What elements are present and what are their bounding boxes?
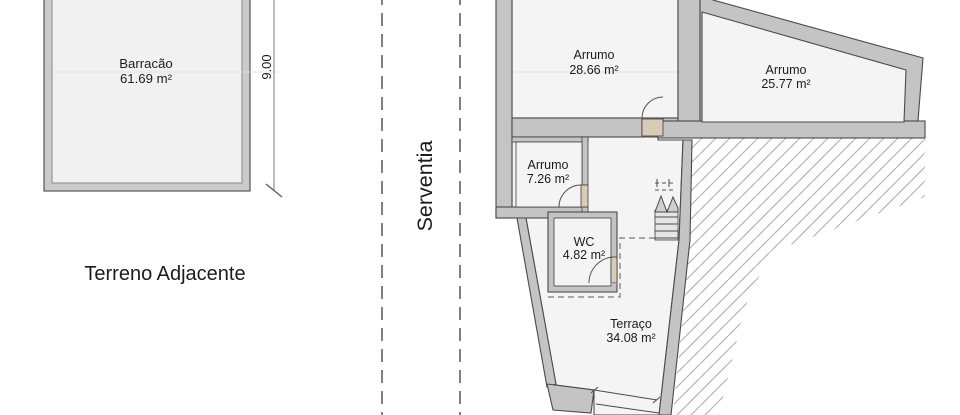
stair-treads-block <box>655 210 678 240</box>
room-terraco-area: 34.08 m² <box>606 331 655 345</box>
room-arrumo-3-name: Arrumo <box>528 158 569 172</box>
serventia-label: Serventia <box>413 141 437 232</box>
room-wc-area: 4.82 m² <box>563 248 605 262</box>
room-arrumo-2-name: Arrumo <box>766 63 807 77</box>
room-arrumo-1-name: Arrumo <box>574 48 615 62</box>
wall-room3-right-upper <box>582 137 588 185</box>
floor-plan-canvas: 9.00 Barracão 61.69 m² Terreno Adjacente… <box>0 0 960 415</box>
serventia-strip: Serventia <box>382 0 460 415</box>
wall-top-bar <box>658 121 925 138</box>
barracao-area: 61.69 m² <box>120 71 173 86</box>
hatched-ground-area <box>673 138 925 415</box>
wall-room1-room2-shared <box>678 0 700 137</box>
adjacent-lot: 9.00 Barracão 61.69 m² Terreno Adjacente <box>44 0 282 285</box>
dimension-9m: 9.00 <box>259 0 282 197</box>
dimension-value: 9.00 <box>259 54 274 79</box>
wall-room3-top <box>512 137 588 142</box>
door-leaf-room3 <box>581 185 588 207</box>
floor-plan-drawing: 9.00 Barracão 61.69 m² Terreno Adjacente… <box>0 0 960 415</box>
wall-left-exterior <box>496 0 512 218</box>
room-wc-name: WC <box>574 235 595 249</box>
room-arrumo-2-area: 25.77 m² <box>761 77 810 91</box>
door-leaf-room1 <box>642 119 663 136</box>
door-leaf-wc <box>611 257 617 283</box>
barracao-name: Barracão <box>119 56 173 71</box>
room-arrumo-3-area: 7.26 m² <box>527 172 569 186</box>
wall-room1-bottom-left <box>512 118 642 137</box>
barracao-interior <box>52 0 242 183</box>
terreno-adjacente-label: Terreno Adjacente <box>84 263 245 285</box>
room-terraco-name: Terraço <box>610 317 652 331</box>
room-arrumo-1-area: 28.66 m² <box>569 63 618 77</box>
